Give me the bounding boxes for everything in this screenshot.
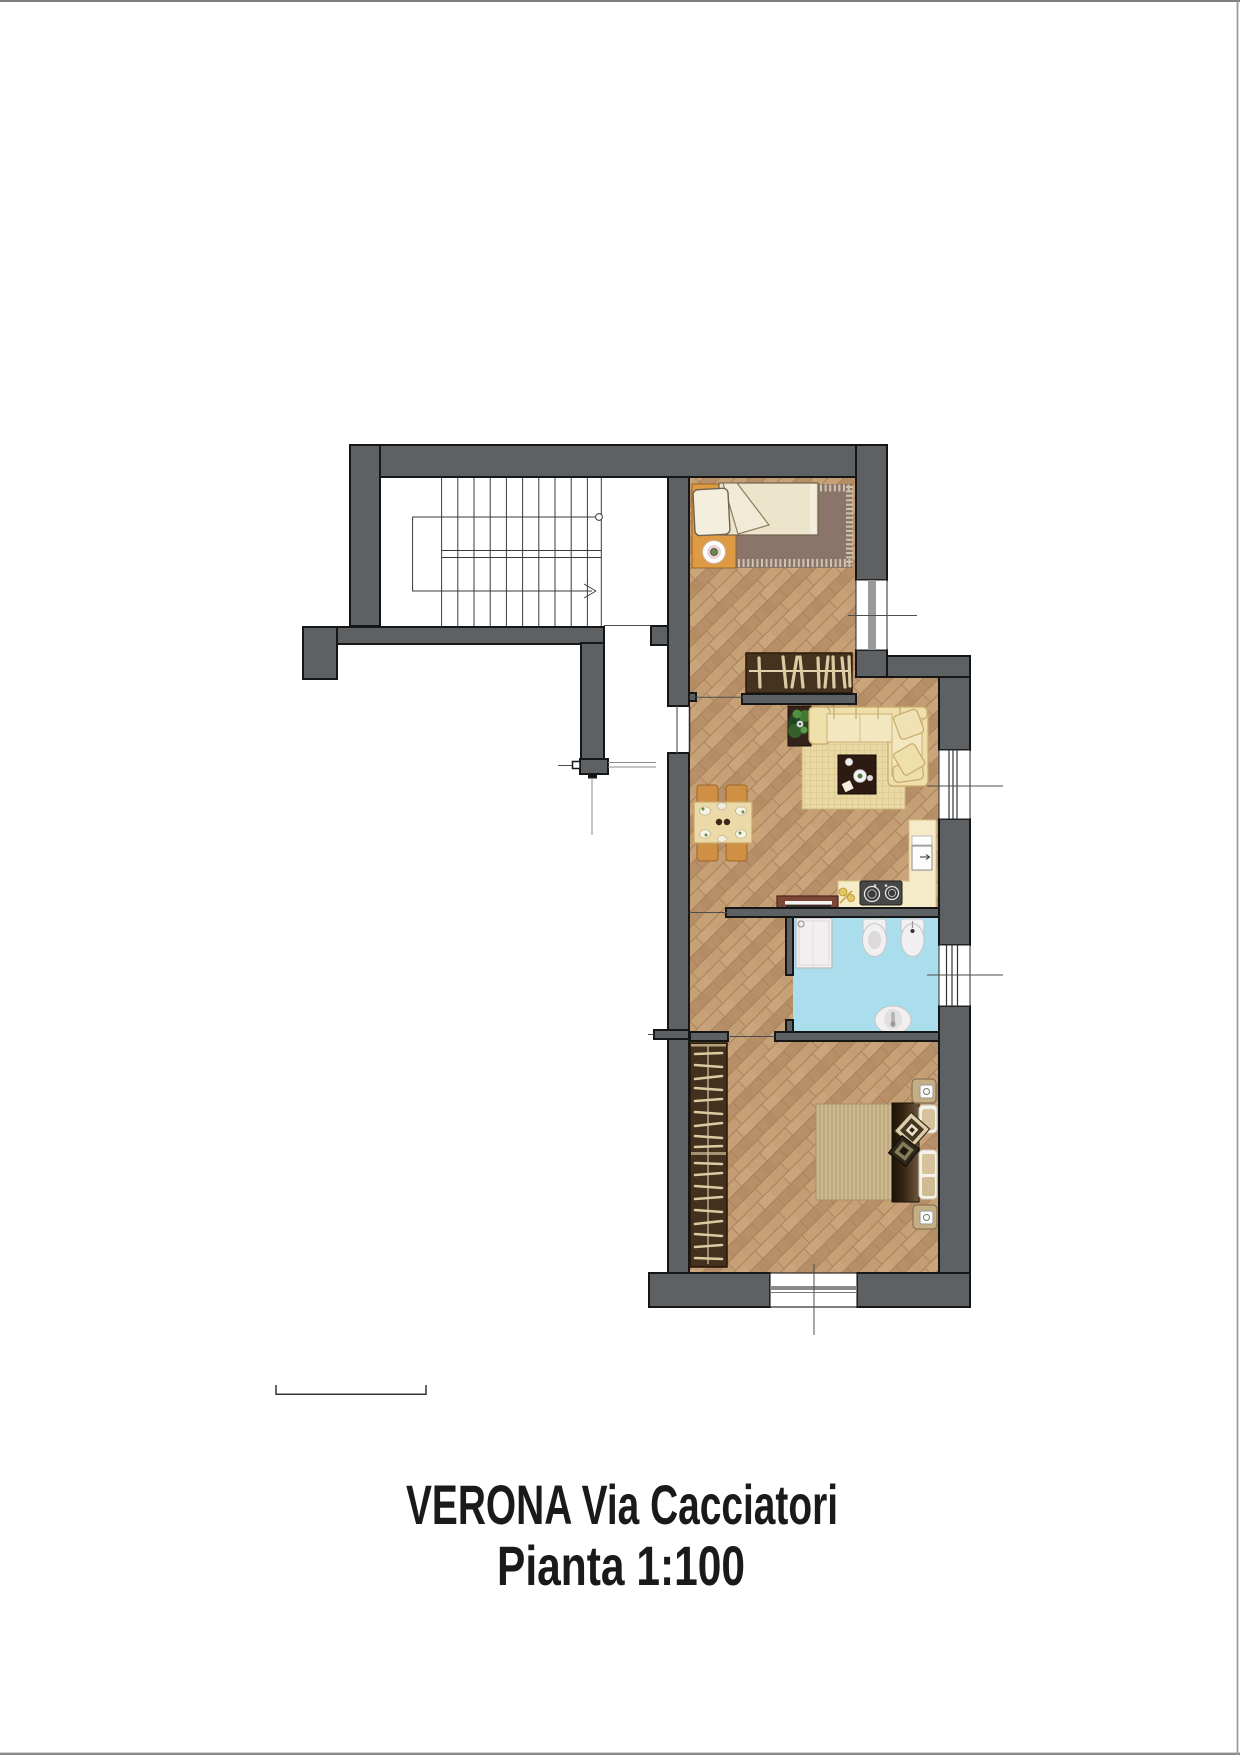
svg-text:VERONA Via Cacciatori: VERONA Via Cacciatori xyxy=(406,1473,838,1536)
svg-text:Pianta 1:100: Pianta 1:100 xyxy=(497,1534,745,1597)
